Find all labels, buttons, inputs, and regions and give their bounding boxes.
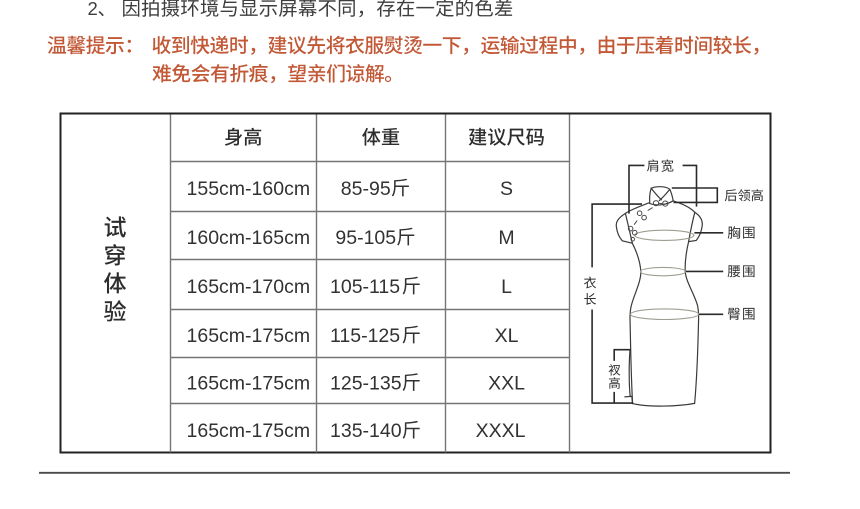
svg-text:165cm-175cm: 165cm-175cm [187,372,311,394]
svg-text:XXXL: XXXL [476,420,526,442]
svg-text:85-95: 85-95 [341,178,391,200]
svg-text:165cm-175cm: 165cm-175cm [187,325,311,347]
svg-text:M: M [498,227,514,249]
svg-text:155cm-160cm: 155cm-160cm [187,178,311,200]
svg-text:XXL: XXL [488,372,525,394]
svg-text:135-140: 135-140 [330,420,402,442]
svg-text:125-135: 125-135 [330,372,402,394]
svg-text:S: S [500,178,513,200]
svg-text:L: L [501,276,512,298]
svg-text:95-105: 95-105 [335,227,396,249]
svg-text:165cm-175cm: 165cm-175cm [187,420,311,442]
svg-text:105-115: 105-115 [330,276,400,298]
svg-text:2: 2 [88,0,98,19]
svg-text:XL: XL [495,325,519,347]
svg-text:165cm-170cm: 165cm-170cm [187,276,311,298]
svg-text:160cm-165cm: 160cm-165cm [187,227,311,249]
svg-text:115-125: 115-125 [330,325,400,347]
